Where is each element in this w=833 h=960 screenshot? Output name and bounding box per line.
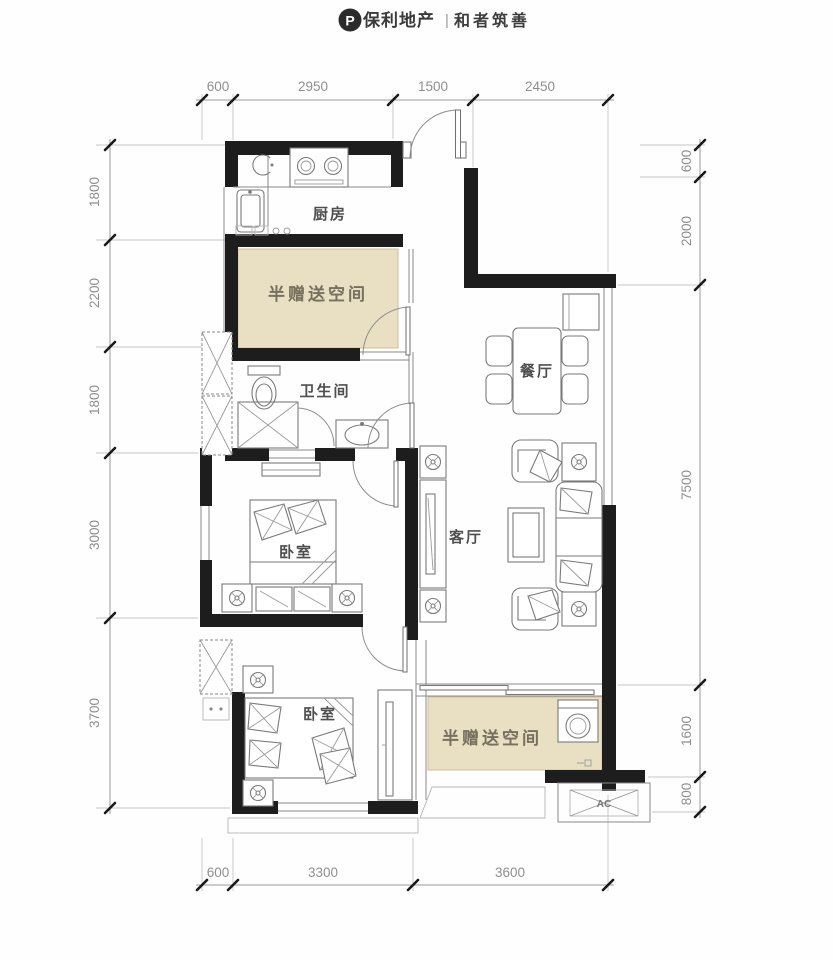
- bedroom2-door: [362, 627, 407, 672]
- door-arc: [353, 461, 396, 506]
- armchair-icon: [512, 440, 562, 482]
- room-dining: 餐厅: [486, 294, 599, 414]
- dim-label: 2000: [679, 216, 694, 246]
- wardrobe: [378, 690, 412, 800]
- dim-label: 800: [679, 783, 694, 806]
- dim-label: 1800: [87, 177, 102, 207]
- dim-label: 1600: [679, 716, 694, 746]
- bed: [245, 698, 356, 784]
- armchair-icon: [512, 588, 560, 630]
- nightstand: [332, 584, 362, 612]
- balcony-ledge: [420, 787, 545, 818]
- bench: [294, 587, 330, 611]
- chair-icon: [562, 336, 588, 366]
- sliding-door: [416, 684, 602, 696]
- wall-segment: [545, 770, 645, 783]
- sofa: [556, 482, 602, 592]
- nightstand: [243, 780, 273, 806]
- chair-icon: [486, 374, 512, 404]
- bench: [256, 587, 292, 611]
- washbasin-icon: [336, 420, 388, 448]
- shower-icon: [238, 402, 334, 448]
- room-bonus-top: 半赠送空间: [238, 249, 398, 348]
- wall-segment: [225, 141, 238, 187]
- dim-label: 2450: [525, 79, 555, 94]
- coffee-table: [508, 508, 544, 562]
- dim-label: 7500: [679, 470, 694, 500]
- dim-label: 1800: [87, 385, 102, 415]
- dim-label: 2200: [87, 278, 102, 308]
- bedroom1-door: [353, 461, 398, 507]
- room-kitchen: 厨房: [233, 148, 391, 235]
- shaft-icon: [202, 332, 232, 394]
- wall-segment: [602, 505, 616, 791]
- door-leaf: [406, 307, 410, 355]
- room-bonus-bottom: 半赠送空间: [428, 697, 602, 770]
- thin-wall: [416, 640, 426, 800]
- dim-label: 2950: [298, 79, 328, 94]
- dim-label: 600: [207, 79, 230, 94]
- window: [269, 450, 315, 458]
- dining-label: 餐厅: [520, 362, 554, 380]
- wall-segment: [315, 448, 355, 461]
- dimension-right: 600 2000 7500 1600 800: [618, 139, 705, 818]
- range-hood-icon: [253, 155, 274, 175]
- bed: [250, 500, 336, 584]
- wall-segment: [464, 274, 616, 288]
- rosette-side-table: [420, 446, 446, 478]
- wall-segment: [464, 168, 478, 288]
- window-sill-shelf: [262, 463, 320, 476]
- dim-label: 600: [679, 150, 694, 173]
- ac-label: AC: [597, 799, 611, 810]
- brand-slogan: 和者筑善: [454, 11, 530, 30]
- bonus-space-top-label: 半赠送空间: [268, 284, 368, 304]
- bathroom-label: 卫生间: [299, 382, 350, 400]
- brand-divider: |: [445, 12, 449, 29]
- dim-label: 3000: [87, 520, 102, 550]
- entry-door: [403, 110, 466, 158]
- side-table: [562, 443, 596, 481]
- door-arc: [362, 627, 405, 671]
- side-table: [562, 592, 596, 626]
- window: [201, 506, 209, 560]
- shaft-icon: [200, 640, 232, 694]
- bay-window-ledge: [228, 818, 418, 833]
- room-living: 客厅: [420, 440, 602, 630]
- washing-machine-icon: [558, 700, 598, 742]
- fridge-icon: [563, 294, 599, 330]
- dim-label: 3600: [495, 865, 525, 880]
- bedroom1-label: 卧室: [279, 543, 313, 561]
- kitchen-label: 厨房: [313, 205, 347, 223]
- door-arc: [410, 110, 458, 158]
- rosette-side-table: [420, 590, 446, 622]
- window: [604, 288, 612, 505]
- ac-outdoor-unit-icon: AC: [570, 790, 638, 816]
- window: [278, 803, 368, 811]
- wall-segment: [405, 448, 418, 640]
- door-leaf: [394, 461, 398, 507]
- floorplan-canvas: P 保利地产 | 和者筑善 600 2950 1500 2450 600 330…: [0, 0, 833, 960]
- wall-segment: [200, 614, 363, 627]
- shaft-icon: [202, 396, 232, 455]
- door-leaf: [403, 627, 407, 672]
- dim-label: 3300: [308, 865, 338, 880]
- brand-mark-letter: P: [345, 13, 354, 29]
- room-bedroom1: 卧室: [222, 461, 398, 612]
- bonus-space-bottom-label: 半赠送空间: [442, 728, 542, 748]
- dim-label: 600: [207, 865, 230, 880]
- wall-segment: [200, 560, 212, 626]
- room-bedroom2: 卧室: [243, 627, 412, 806]
- door-leaf: [410, 403, 414, 448]
- shaft-vent-icon: [203, 698, 229, 720]
- brand-name: 保利地产: [362, 10, 435, 30]
- nightstand: [222, 584, 252, 612]
- door-leaf: [456, 110, 461, 158]
- tv-cabinet: [420, 480, 446, 588]
- chair-icon: [562, 374, 588, 404]
- living-label: 客厅: [448, 528, 483, 546]
- dim-label: 3700: [87, 698, 102, 728]
- wall-segment: [368, 801, 418, 814]
- stove-icon: [290, 148, 348, 187]
- header-logo: P 保利地产 | 和者筑善: [339, 9, 531, 32]
- wall-segment: [200, 448, 212, 506]
- wall-segment: [225, 348, 360, 361]
- room-bathroom: 卫生间: [238, 366, 414, 448]
- dim-label: 1500: [418, 79, 448, 94]
- wall-segment: [391, 141, 403, 187]
- bedroom2-label: 卧室: [303, 705, 337, 723]
- chair-icon: [486, 336, 512, 366]
- shafts: [200, 332, 232, 720]
- nightstand: [243, 666, 273, 693]
- wall-segment: [225, 234, 403, 247]
